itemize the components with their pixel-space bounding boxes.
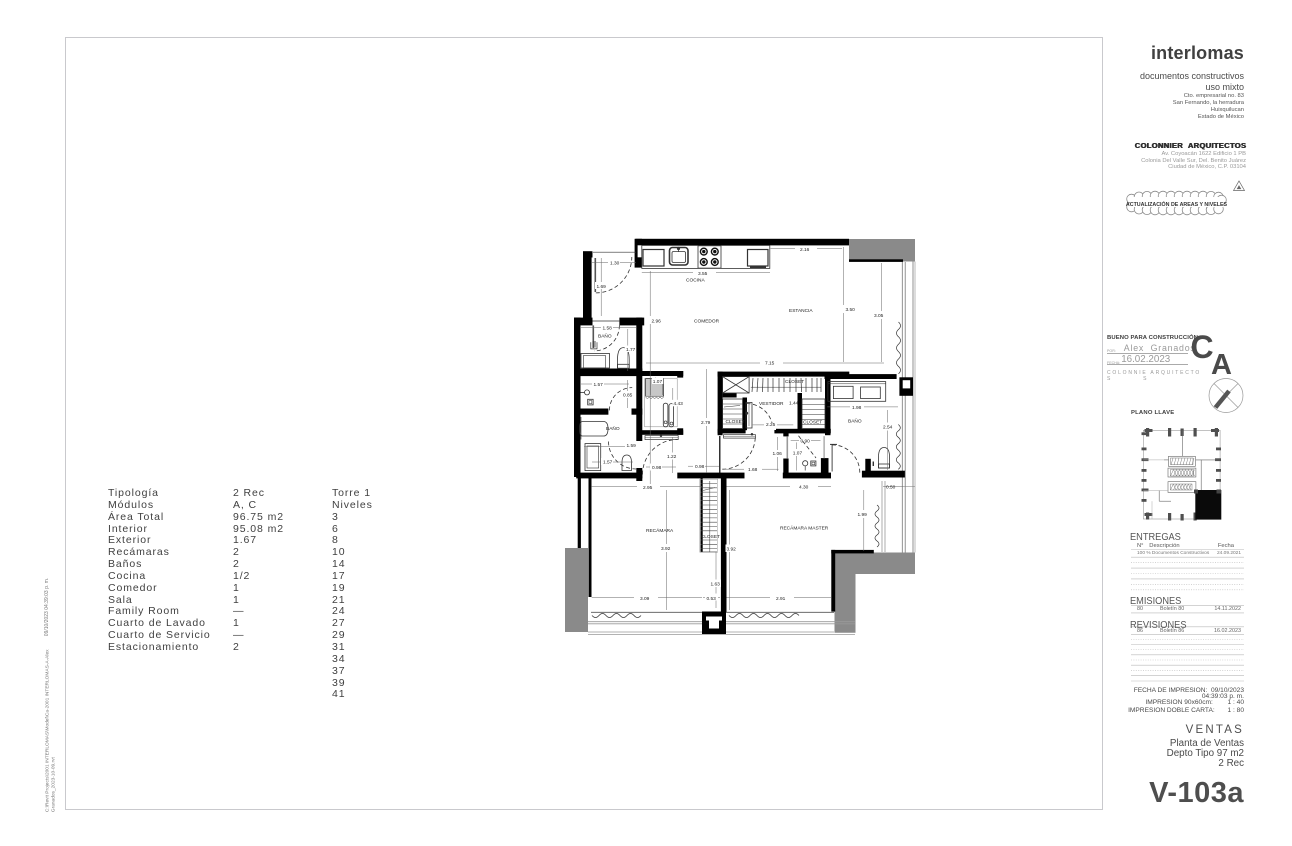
svg-text:1.63: 1.63 (711, 582, 721, 588)
svg-text:COMEDOR: COMEDOR (694, 319, 720, 325)
svg-text:1.07: 1.07 (793, 450, 803, 456)
svg-text:1.77: 1.77 (626, 347, 636, 353)
svg-text:CLOSET: CLOSET (726, 419, 745, 425)
svg-text:RECÁMARA: RECÁMARA (646, 527, 674, 534)
svg-text:1.98: 1.98 (852, 405, 862, 411)
svg-text:ACTUALIZACIÓN DE AREAS Y NIVEL: ACTUALIZACIÓN DE AREAS Y NIVELES (1126, 200, 1228, 208)
svg-text:0.98: 0.98 (695, 464, 705, 470)
svg-text:1.06: 1.06 (773, 451, 783, 457)
svg-text:3.55: 3.55 (698, 271, 708, 277)
svg-text:2.79: 2.79 (701, 420, 711, 426)
svg-text:0.53: 0.53 (707, 596, 717, 602)
svg-text:2.25: 2.25 (766, 422, 776, 428)
svg-text:1.58: 1.58 (603, 326, 613, 332)
svg-text:CLOSET: CLOSET (701, 534, 720, 540)
svg-text:3.09: 3.09 (640, 596, 650, 602)
svg-text:1.57: 1.57 (594, 382, 604, 388)
svg-text:2.95: 2.95 (643, 485, 653, 491)
svg-text:1.69: 1.69 (597, 284, 607, 290)
svg-text:1.99: 1.99 (858, 512, 868, 518)
svg-text:0.50: 0.50 (886, 485, 896, 491)
svg-text:CLOSET: CLOSET (803, 420, 822, 426)
svg-text:2.96: 2.96 (652, 318, 662, 324)
svg-text:0.90: 0.90 (801, 439, 811, 445)
svg-text:RECÁMARA MASTER: RECÁMARA MASTER (780, 525, 829, 532)
svg-text:1.59: 1.59 (627, 443, 637, 449)
svg-text:3.05: 3.05 (874, 313, 884, 319)
svg-text:1.07: 1.07 (653, 379, 663, 385)
svg-text:7.15: 7.15 (765, 361, 775, 367)
svg-text:BAÑO: BAÑO (606, 425, 620, 432)
svg-text:2.16: 2.16 (800, 247, 810, 253)
svg-text:3.92: 3.92 (727, 547, 737, 553)
svg-text:4.30: 4.30 (799, 485, 809, 491)
svg-text:4.43: 4.43 (674, 401, 684, 407)
svg-text:BAÑO: BAÑO (848, 418, 862, 425)
svg-text:CLOSET: CLOSET (785, 379, 804, 385)
svg-text:2.91: 2.91 (776, 596, 786, 602)
svg-text:1.22: 1.22 (667, 454, 677, 460)
svg-text:1.68: 1.68 (748, 467, 758, 473)
svg-text:3.50: 3.50 (846, 307, 856, 313)
svg-text:1.44: 1.44 (789, 401, 799, 407)
svg-text:ESTANCIA: ESTANCIA (789, 308, 813, 314)
svg-text:VESTIDOR: VESTIDOR (759, 401, 784, 407)
svg-text:1.30: 1.30 (610, 261, 620, 267)
svg-text:2.54: 2.54 (883, 425, 893, 431)
svg-text:BAÑO: BAÑO (598, 333, 612, 340)
svg-text:COCINA: COCINA (686, 277, 705, 283)
svg-text:1.57: 1.57 (603, 460, 613, 466)
svg-text:0.85: 0.85 (623, 393, 633, 399)
svg-text:3.92: 3.92 (661, 546, 671, 552)
svg-text:0.98: 0.98 (652, 465, 662, 471)
